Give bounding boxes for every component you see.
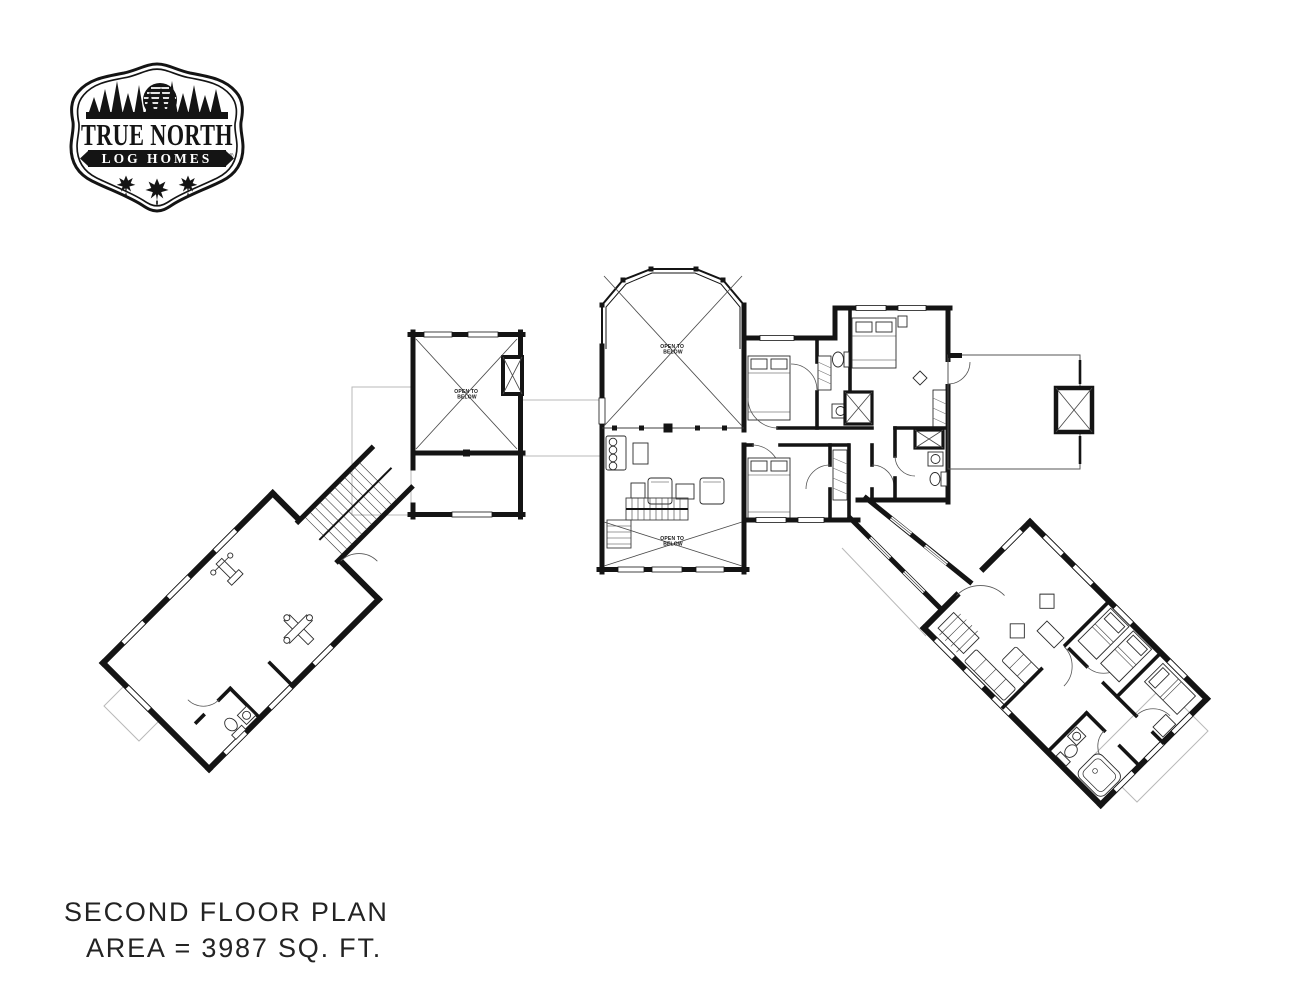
window — [856, 306, 886, 311]
window — [121, 620, 146, 645]
window — [424, 332, 452, 337]
left-wing — [99, 419, 452, 772]
plan-drawing: TRUE NORTH LOG HOMES ® — [0, 0, 1296, 1000]
window — [1144, 741, 1165, 762]
closet — [933, 390, 946, 428]
logo-ribbon: LOG HOMES ® — [80, 150, 234, 167]
bed-icon — [748, 356, 790, 420]
powder-room — [181, 640, 293, 752]
window — [468, 332, 498, 337]
game-room — [935, 553, 1086, 704]
gym-room — [209, 542, 325, 658]
gym-equipment-icon — [271, 602, 324, 655]
sofa-icon — [1002, 646, 1040, 684]
plan-area: AREA = 3987 SQ. FT. — [86, 933, 382, 963]
sink-icon — [928, 452, 943, 466]
upper-left-open-room: OPEN TO BELOW — [410, 332, 523, 517]
closet — [818, 356, 831, 390]
master-bathroom — [895, 428, 948, 500]
logo-subtitle: LOG HOMES — [102, 151, 213, 166]
open-to-below-label: OPEN TO BELOW — [454, 389, 479, 400]
side-table-icon — [631, 483, 645, 498]
right-wing — [920, 518, 1210, 808]
toilet-icon — [833, 352, 850, 367]
bedroom-3 — [744, 445, 858, 523]
window — [618, 567, 644, 572]
open-to-below-label: OPEN TO BELOW — [660, 344, 685, 355]
bed-icon — [748, 458, 790, 520]
gym-equipment-icon — [209, 551, 248, 590]
window — [1001, 529, 1023, 551]
chimney — [1056, 388, 1092, 432]
logo-title: TRUE NORTH — [81, 117, 233, 152]
shower-icon — [845, 392, 872, 424]
window — [452, 512, 492, 517]
open-to-below-label: OPEN TO BELOW — [660, 536, 685, 547]
bay-window — [600, 267, 747, 350]
window — [125, 685, 151, 711]
nightstand-icon — [898, 316, 907, 327]
window — [1072, 564, 1094, 586]
plan-caption: SECOND FLOOR PLAN AREA = 3987 SQ. FT. — [64, 897, 389, 963]
closet — [833, 450, 847, 500]
corridor-right — [850, 498, 970, 610]
shower-icon — [915, 430, 943, 448]
window — [268, 685, 293, 710]
great-room-open-to-below: OPEN TO BELOW — [604, 276, 742, 426]
window — [166, 575, 191, 600]
side-table-icon — [676, 484, 694, 499]
chimney — [503, 357, 522, 394]
armchair-icon — [648, 478, 672, 504]
bed-icon — [852, 316, 907, 368]
sofa-icon — [606, 436, 626, 470]
coffee-table-icon — [1037, 621, 1064, 648]
window — [760, 336, 794, 341]
center-block: OPEN TO BELOW — [599, 267, 747, 573]
chair-icon — [1003, 617, 1031, 645]
window — [599, 398, 605, 424]
window — [312, 644, 334, 666]
master-deck — [948, 353, 1092, 469]
table-icon — [633, 443, 648, 464]
plan-title: SECOND FLOOR PLAN — [64, 897, 389, 927]
window — [756, 518, 786, 523]
floor-plan-sheet: TRUE NORTH LOG HOMES ® — [0, 0, 1296, 1000]
company-logo: TRUE NORTH LOG HOMES ® — [71, 64, 243, 211]
armchair-icon — [700, 478, 724, 504]
logo-trademark: ® — [229, 153, 234, 160]
chair-icon — [1033, 587, 1061, 615]
loft-lounge — [606, 436, 724, 504]
window — [696, 567, 724, 572]
toilet-icon — [930, 472, 947, 486]
bedroom-2 — [744, 336, 835, 429]
window — [898, 306, 926, 311]
chair-icon — [913, 371, 927, 385]
window — [798, 518, 824, 523]
window — [652, 567, 682, 572]
bunk-bed-icon — [1145, 663, 1196, 714]
window — [213, 528, 238, 553]
window — [1042, 534, 1064, 556]
